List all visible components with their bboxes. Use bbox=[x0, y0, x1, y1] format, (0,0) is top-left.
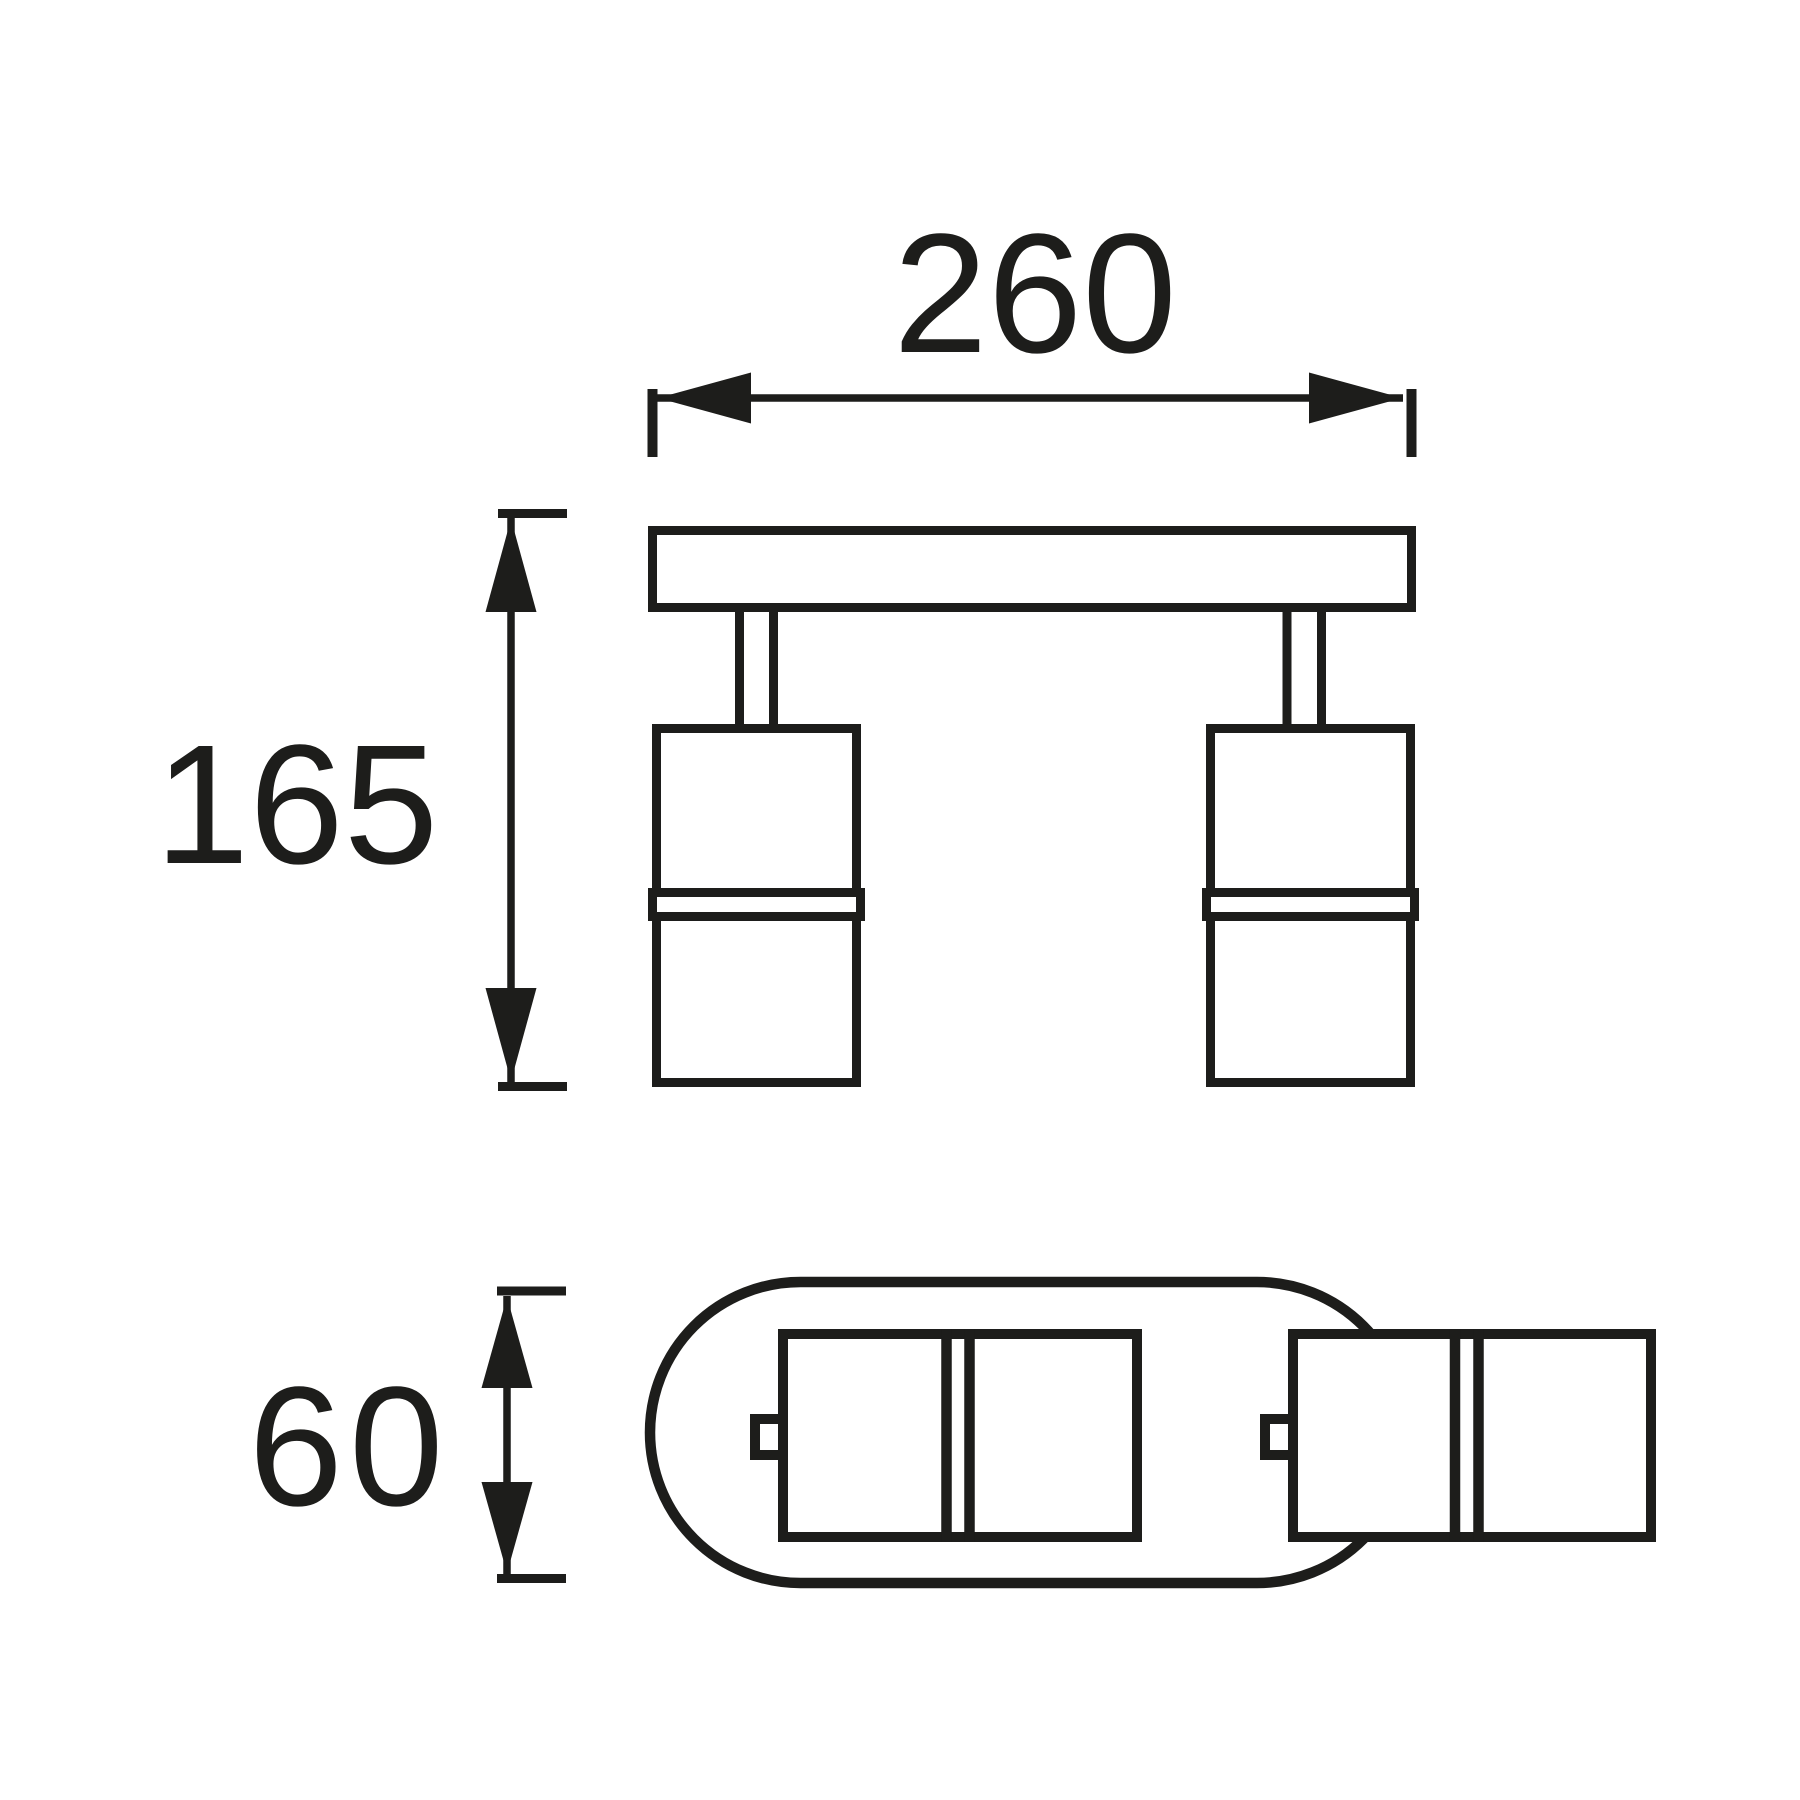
svg-text:165: 165 bbox=[155, 710, 439, 900]
svg-text:260: 260 bbox=[893, 199, 1177, 389]
svg-text:60: 60 bbox=[248, 1352, 449, 1542]
